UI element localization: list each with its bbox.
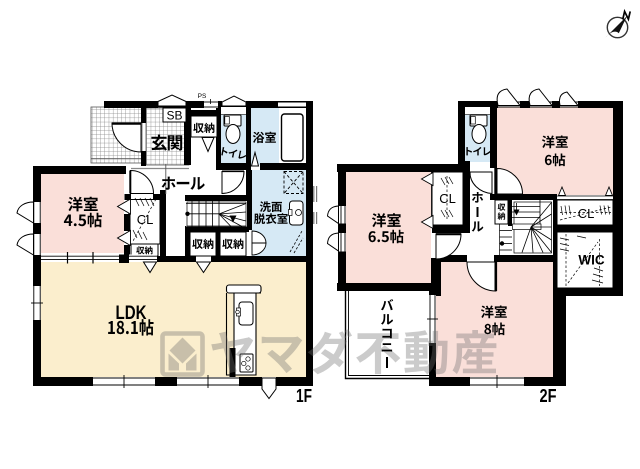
svg-text:CL: CL xyxy=(137,212,154,227)
svg-text:SB: SB xyxy=(166,109,182,123)
svg-text:CL: CL xyxy=(439,191,456,206)
svg-text:2F: 2F xyxy=(540,386,557,406)
svg-text:PS: PS xyxy=(198,93,207,100)
svg-text:CL: CL xyxy=(578,206,595,221)
svg-text:WIC: WIC xyxy=(578,253,604,268)
svg-text:1F: 1F xyxy=(296,386,312,406)
